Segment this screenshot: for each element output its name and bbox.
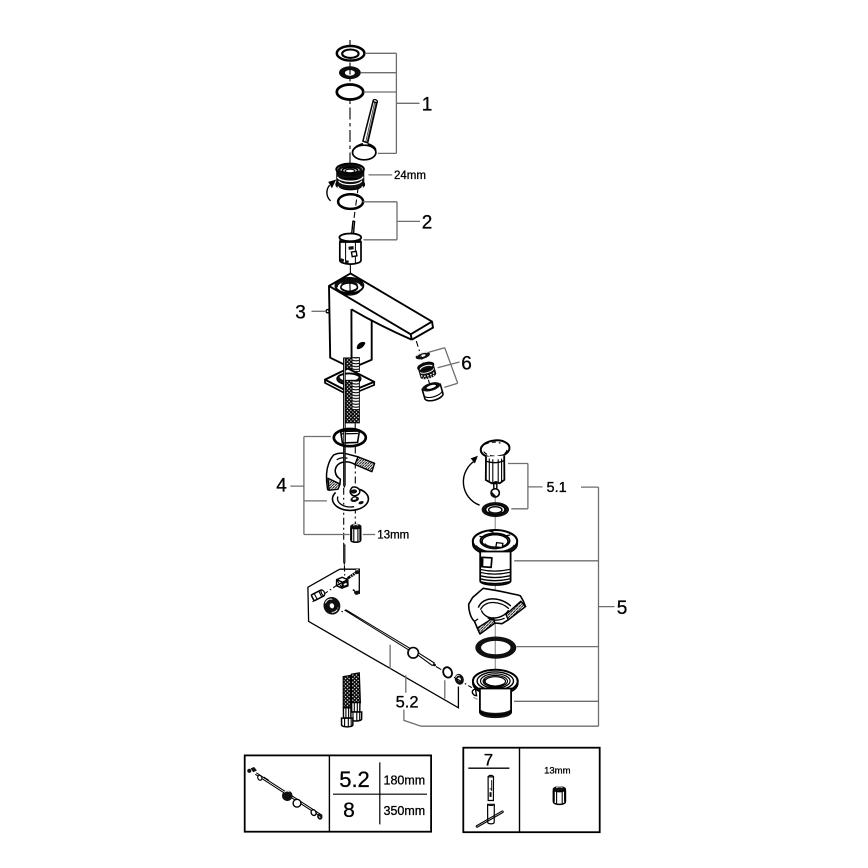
svg-text:350mm: 350mm	[384, 804, 426, 818]
svg-text:4: 4	[276, 476, 287, 497]
svg-text:5.2: 5.2	[339, 767, 370, 792]
svg-text:180mm: 180mm	[384, 773, 426, 787]
svg-text:3: 3	[295, 302, 306, 323]
svg-text:7: 7	[484, 750, 493, 769]
svg-text:2: 2	[422, 213, 433, 234]
svg-text:5: 5	[617, 598, 628, 619]
svg-text:13mm: 13mm	[377, 529, 409, 541]
svg-text:8: 8	[343, 799, 355, 822]
svg-text:24mm: 24mm	[394, 170, 426, 182]
svg-text:6: 6	[461, 354, 472, 375]
svg-text:1: 1	[422, 95, 433, 116]
svg-text:13mm: 13mm	[544, 766, 570, 777]
svg-text:5.1: 5.1	[547, 480, 567, 496]
svg-text:5.2: 5.2	[396, 693, 419, 711]
